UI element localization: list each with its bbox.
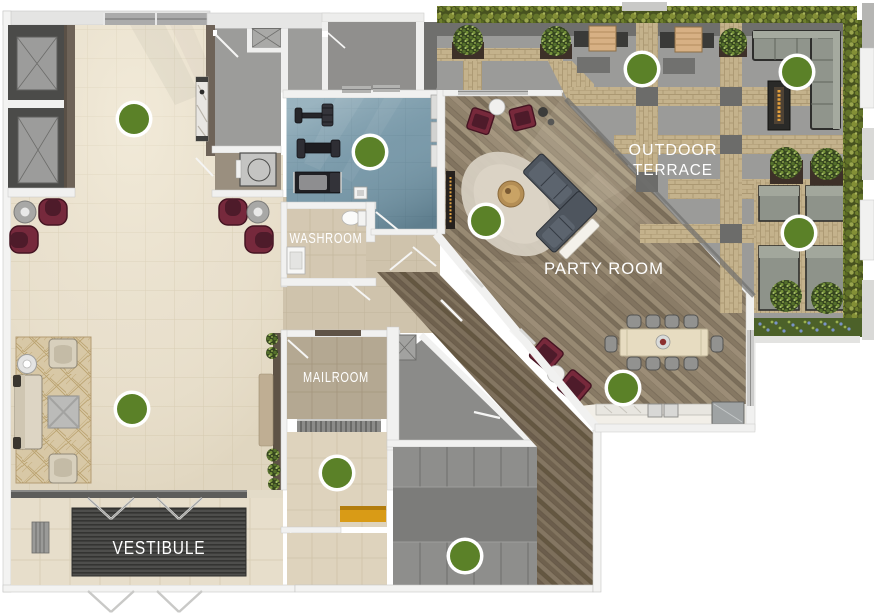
svg-text:MAILROOM: MAILROOM — [303, 369, 369, 386]
svg-text:PARTY ROOM: PARTY ROOM — [544, 259, 664, 278]
svg-text:WASHROOM: WASHROOM — [290, 230, 363, 247]
svg-text:TERRACE: TERRACE — [633, 162, 713, 179]
svg-text:OUTDOOR: OUTDOOR — [629, 142, 718, 159]
svg-text:VESTIBULE: VESTIBULE — [113, 538, 206, 558]
